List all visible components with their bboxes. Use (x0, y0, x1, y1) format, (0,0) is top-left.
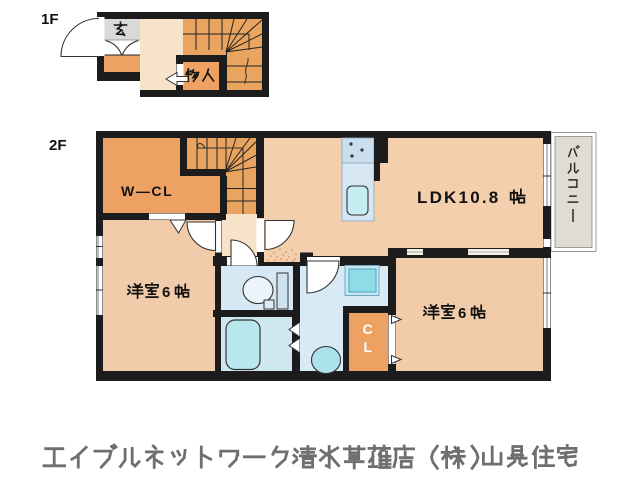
svg-text:W—CL: W—CL (121, 183, 173, 199)
svg-text:6: 6 (458, 305, 466, 322)
svg-text:2F: 2F (49, 137, 67, 154)
svg-text:6: 6 (162, 284, 170, 301)
svg-text:1F: 1F (41, 11, 59, 28)
svg-text:LDK10.8: LDK10.8 (417, 188, 500, 207)
svg-text:C: C (363, 321, 373, 337)
svg-text:L: L (364, 339, 373, 355)
